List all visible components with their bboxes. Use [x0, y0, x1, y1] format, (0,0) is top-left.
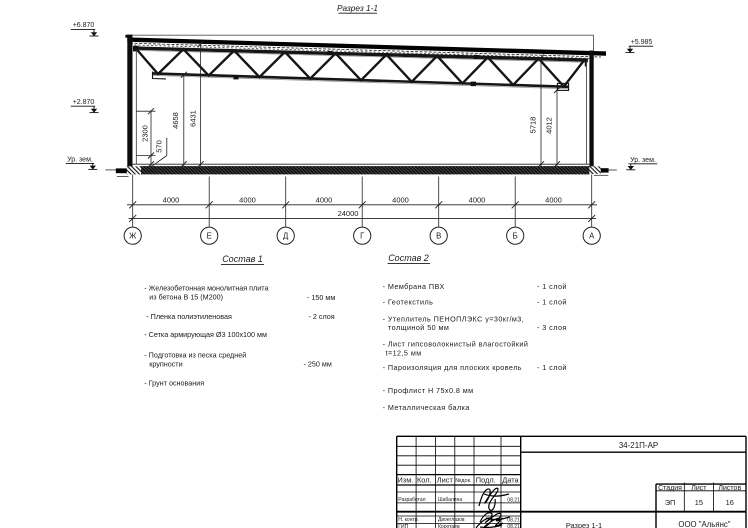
svg-text:+2.870: +2.870 — [73, 99, 95, 106]
svg-text:Двоеглазов: Двоеглазов — [438, 517, 465, 523]
svg-text:Лист: Лист — [437, 475, 454, 484]
svg-text:08.21: 08.21 — [507, 524, 520, 528]
svg-text:- 1 слой: - 1 слой — [537, 282, 567, 291]
svg-text:- Железобетонная монолитная п: - Железобетонная монолитная плита — [144, 284, 268, 293]
svg-text:Подл.: Подл. — [476, 475, 496, 484]
svg-text:Ур. зем.: Ур. зем. — [630, 157, 656, 164]
svg-text:08.21: 08.21 — [507, 517, 520, 523]
svg-text:Н. контр.: Н. контр. — [398, 517, 419, 523]
svg-text:- 3 слоя: - 3 слоя — [537, 323, 567, 332]
svg-text:4000: 4000 — [239, 196, 256, 205]
svg-text:- Пароизоляция для плоских кро: - Пароизоляция для плоских кровель — [383, 363, 522, 372]
svg-text:4012: 4012 — [545, 117, 554, 134]
svg-text:Состав 1: Состав 1 — [222, 254, 263, 264]
svg-text:- 150 мм: - 150 мм — [307, 293, 335, 302]
svg-text:- Сетка армирующая Ø3 100x100: - Сетка армирующая Ø3 100x100 мм — [144, 330, 267, 339]
svg-text:- Мембрана ПВХ: - Мембрана ПВХ — [383, 282, 445, 291]
svg-text:Разрез 1-1: Разрез 1-1 — [337, 3, 378, 13]
svg-text:+5.985: +5.985 — [631, 39, 653, 46]
svg-text:Шабалина: Шабалина — [438, 497, 462, 503]
svg-text:- Пленка полиэтиленовая: - Пленка полиэтиленовая — [146, 312, 232, 321]
svg-text:Ж: Ж — [129, 232, 137, 241]
svg-text:4000: 4000 — [163, 196, 180, 205]
svg-text:570: 570 — [155, 140, 164, 153]
svg-text:Лист: Лист — [691, 485, 707, 492]
svg-text:4658: 4658 — [171, 112, 180, 129]
svg-text:15: 15 — [695, 498, 703, 507]
svg-text:В: В — [436, 232, 441, 241]
svg-text:Разработал: Разработал — [398, 497, 425, 503]
svg-text:из бетона В 15 (М200): из бетона В 15 (М200) — [149, 293, 223, 302]
svg-text:Д: Д — [283, 232, 289, 241]
svg-text:Коротаев: Коротаев — [438, 524, 460, 528]
svg-text:4000: 4000 — [392, 196, 409, 205]
svg-text:- 1 слой: - 1 слой — [537, 298, 567, 307]
svg-text:t=12,5 мм: t=12,5 мм — [386, 348, 422, 357]
svg-text:+6.870: +6.870 — [73, 22, 95, 29]
svg-text:ГИП: ГИП — [398, 524, 408, 528]
svg-text:- Подготовка из песка средней: - Подготовка из песка средней — [144, 350, 246, 359]
svg-text:6431: 6431 — [188, 110, 197, 127]
svg-text:Изм.: Изм. — [398, 475, 414, 484]
svg-text:4000: 4000 — [545, 196, 562, 205]
svg-text:5718: 5718 — [529, 117, 538, 134]
svg-text:ООО "Альянс": ООО "Альянс" — [678, 520, 730, 528]
svg-text:2300: 2300 — [141, 125, 150, 142]
svg-text:08.21: 08.21 — [507, 497, 520, 503]
svg-text:- 2 слоя: - 2 слоя — [309, 312, 335, 321]
svg-text:Ур. зем.: Ур. зем. — [67, 156, 93, 163]
svg-text:24000: 24000 — [338, 209, 359, 218]
svg-text:4000: 4000 — [316, 196, 333, 205]
svg-text:А: А — [589, 232, 595, 241]
svg-text:ЭП: ЭП — [665, 498, 676, 507]
svg-text:Б: Б — [513, 232, 518, 241]
svg-text:34-21П-АР: 34-21П-АР — [619, 441, 659, 450]
svg-text:Дата: Дата — [502, 475, 519, 484]
svg-text:- Геотекстиль: - Геотекстиль — [383, 298, 434, 307]
svg-text:Е: Е — [207, 232, 212, 241]
svg-text:Кол.: Кол. — [417, 475, 432, 484]
svg-text:крупности: крупности — [149, 360, 182, 369]
svg-text:- Металлическая балка: - Металлическая балка — [383, 403, 470, 412]
svg-text:Разрез 1-1: Разрез 1-1 — [566, 521, 602, 528]
svg-text:16: 16 — [726, 498, 734, 507]
svg-text:- Грунт основания: - Грунт основания — [144, 379, 204, 388]
svg-text:- Лист гипсоволокнистый влагос: - Лист гипсоволокнистый влагостойкий — [383, 339, 529, 348]
svg-text:Состав 2: Состав 2 — [388, 253, 429, 263]
svg-text:- 250 мм: - 250 мм — [304, 360, 332, 369]
svg-text:Стадия: Стадия — [658, 485, 682, 492]
svg-text:- Профлист Н 75x0.8 мм: - Профлист Н 75x0.8 мм — [383, 386, 474, 395]
svg-text:№док.: №док. — [455, 478, 472, 484]
svg-text:- 1 слой: - 1 слой — [537, 363, 567, 372]
svg-text:4000: 4000 — [469, 196, 486, 205]
svg-text:Листов: Листов — [718, 485, 741, 492]
svg-text:толщиной 50 мм: толщиной 50 мм — [388, 323, 449, 332]
